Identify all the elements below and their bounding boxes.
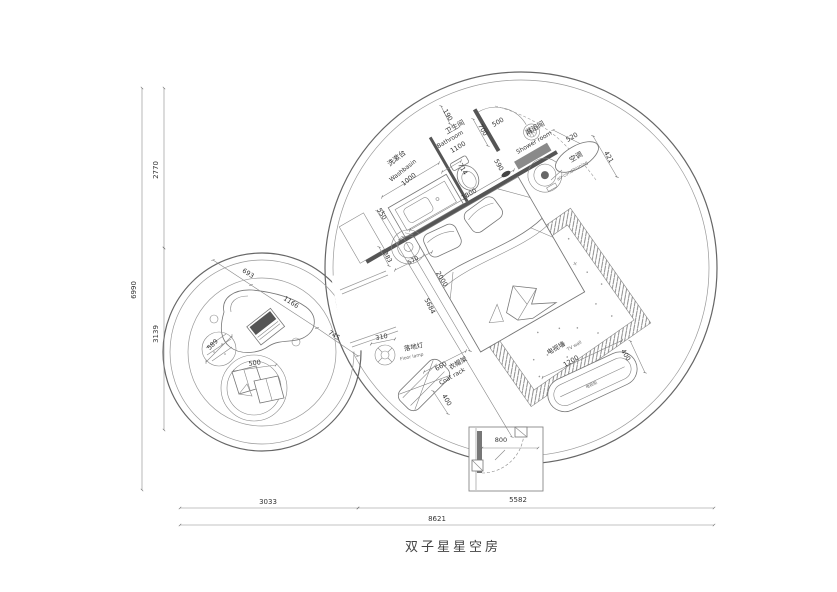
- floor-plan-drawing: 洗漱台 Washbasin 1000 卫生间 Bathroom 1100 190…: [0, 0, 837, 592]
- dim-500-door: 500: [491, 116, 506, 129]
- dim-500-seat: 500: [248, 358, 261, 368]
- dim-2770: 2770: [152, 161, 160, 179]
- label-tv-wall-zh: 电视墙: [545, 339, 567, 357]
- dim-3033: 3033: [259, 498, 277, 506]
- dim-550: 550: [375, 207, 388, 222]
- dim-570: 570: [407, 255, 421, 267]
- dim-693: 693: [241, 267, 256, 280]
- floor-lamp: [375, 345, 395, 365]
- dim-5582: 5582: [509, 496, 527, 504]
- dim-6990: 6990: [130, 281, 138, 299]
- dim-8621: 8621: [428, 515, 446, 523]
- dim-421: 421: [602, 150, 615, 165]
- cup: [210, 315, 218, 323]
- label-tv-wall-en: TV wall: [565, 339, 583, 353]
- dim-5684: 5684: [422, 297, 437, 315]
- drawing-title: 双子星星空房: [405, 539, 501, 555]
- label-floor-lamp-en: Floor lamp: [399, 352, 424, 363]
- dim-383: 383: [381, 251, 393, 265]
- lounge-table: [210, 290, 314, 353]
- dim-3139: 3139: [152, 325, 160, 343]
- dim-590: 590: [492, 158, 505, 173]
- floor-plan-canvas: 洗漱台 Washbasin 1000 卫生间 Bathroom 1100 190…: [0, 0, 837, 592]
- dim-190: 190: [441, 108, 454, 123]
- dim-800: 800: [495, 436, 507, 444]
